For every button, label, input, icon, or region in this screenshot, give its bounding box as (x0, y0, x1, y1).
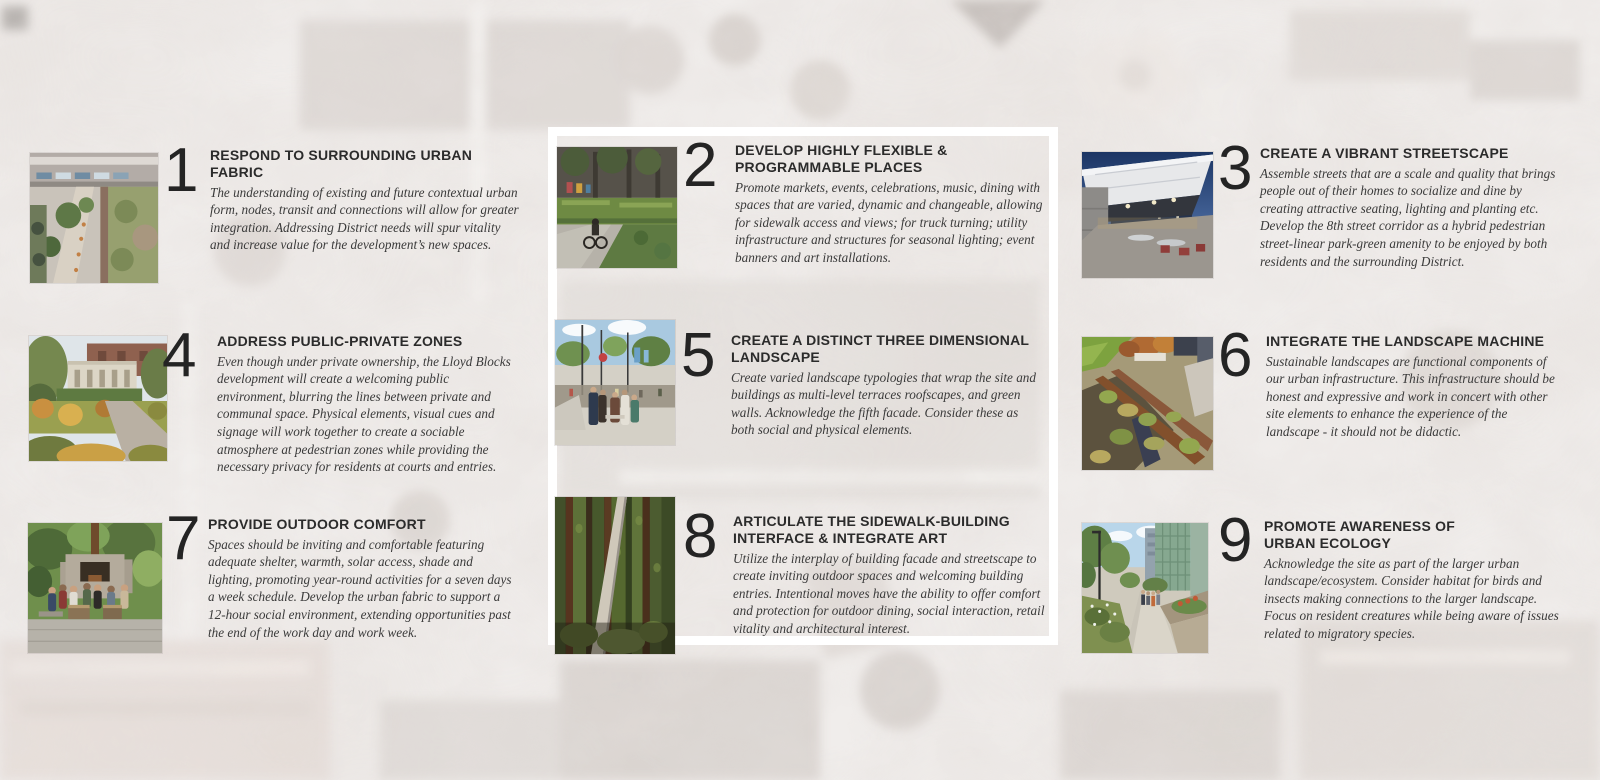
item-number: 7 (166, 513, 198, 566)
item-body: Acknowledge the site as part of the larg… (1264, 555, 1560, 643)
item-number: 1 (164, 145, 196, 198)
item-title: PROVIDE OUTDOOR COMFORT (208, 516, 514, 533)
urban-pathway-photo (1082, 523, 1208, 653)
item-body: Sustainable landscapes are functional co… (1266, 353, 1558, 441)
item-body: Spaces should be inviting and comfortabl… (208, 536, 514, 641)
garden-historic-building-photo (29, 336, 167, 461)
item-body: Promote markets, events, celebrations, m… (735, 179, 1043, 267)
item-number: 2 (683, 140, 715, 193)
item-title: ARTICULATE THE SIDEWALK-BUILDING INTERFA… (733, 513, 1033, 547)
item-number: 4 (162, 330, 194, 383)
design-principles-board: 1 RESPOND TO SURROUNDING URBAN FABRIC Th… (0, 0, 1600, 780)
item-body: Utilize the interplay of building facade… (733, 550, 1047, 638)
item-number: 8 (683, 511, 715, 564)
item-number: 6 (1218, 330, 1250, 383)
item-number: 9 (1218, 515, 1250, 568)
item-body: Even though under private ownership, the… (217, 353, 519, 476)
item-title: INTEGRATE THE LANDSCAPE MACHINE (1266, 333, 1558, 350)
item-title: CREATE A DISTINCT THREE DIMENSIONAL LAND… (731, 332, 1045, 366)
outdoor-fireplace-photo (28, 523, 162, 653)
green-wall-photo (555, 497, 675, 654)
child-cycling-plaza-photo (557, 147, 677, 268)
item-body: Assemble streets that are a scale and qu… (1260, 165, 1560, 270)
street-crowd-photo (555, 320, 675, 445)
item-number: 5 (681, 330, 713, 383)
item-title: CREATE A VIBRANT STREETSCAPE (1260, 145, 1560, 162)
item-title: DEVELOP HIGHLY FLEXIBLE & PROGRAMMABLE P… (735, 142, 1007, 176)
rail-garden-photo (1082, 337, 1213, 470)
item-number: 3 (1218, 143, 1250, 196)
item-title: RESPOND TO SURROUNDING URBAN FABRIC (210, 147, 482, 181)
item-title: PROMOTE AWARENESS OF URBAN ECOLOGY (1264, 518, 1504, 552)
item-body: The understanding of existing and future… (210, 184, 522, 254)
item-title: ADDRESS PUBLIC-PRIVATE ZONES (217, 333, 519, 350)
aerial-courtyard-photo (30, 153, 158, 283)
item-body: Create varied landscape typologies that … (731, 369, 1045, 439)
evening-pavilion-photo (1082, 152, 1213, 278)
